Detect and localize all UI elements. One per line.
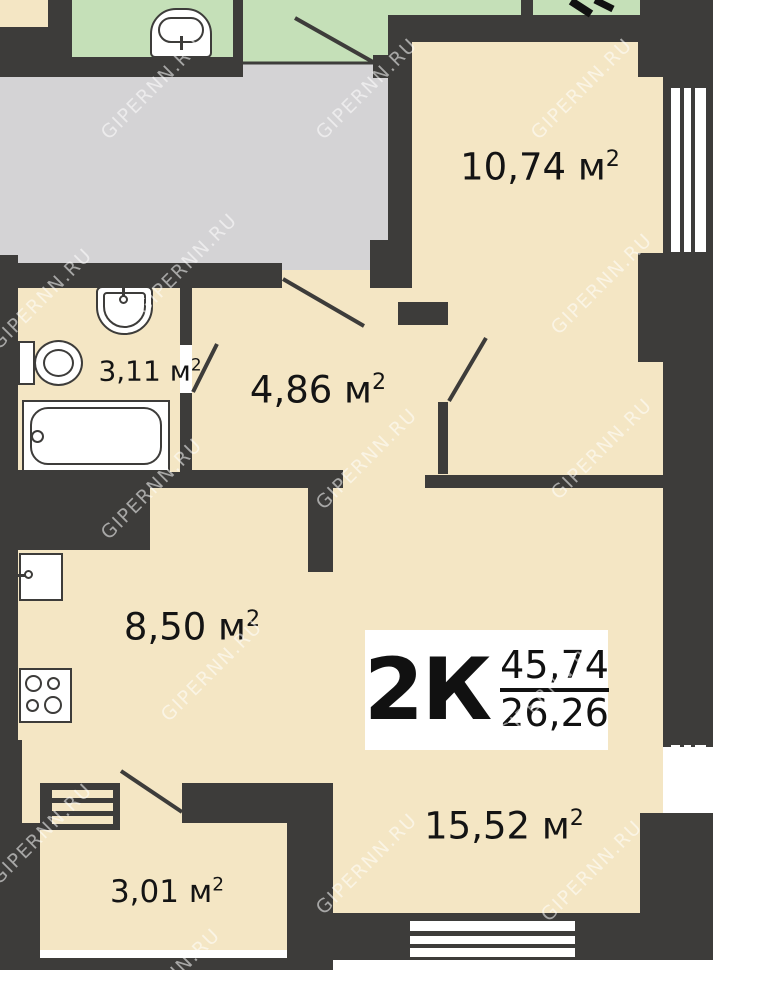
- north-arrow-icon: [571, 0, 613, 14]
- apartment-type: 2К: [364, 647, 490, 733]
- area-label-loggia: 3,01 м2: [110, 874, 224, 910]
- door-leaf: [295, 18, 373, 62]
- area-label-hallway: 4,86 м2: [250, 369, 386, 412]
- apartment-summary: 2К 45,74 26,26: [365, 630, 608, 750]
- area-label-bathroom: 3,11 м2: [98, 354, 201, 387]
- door-leaf: [449, 338, 486, 401]
- area-label-living: 15,52 м2: [424, 805, 584, 848]
- door-leaf: [283, 279, 364, 326]
- door-leaf: [121, 771, 182, 812]
- floor-plan: 10,74 м2 4,86 м2 3,11 м2 8,50 м2 15,52 м…: [0, 0, 759, 1000]
- area-label-bedroom: 10,74 м2: [460, 146, 620, 189]
